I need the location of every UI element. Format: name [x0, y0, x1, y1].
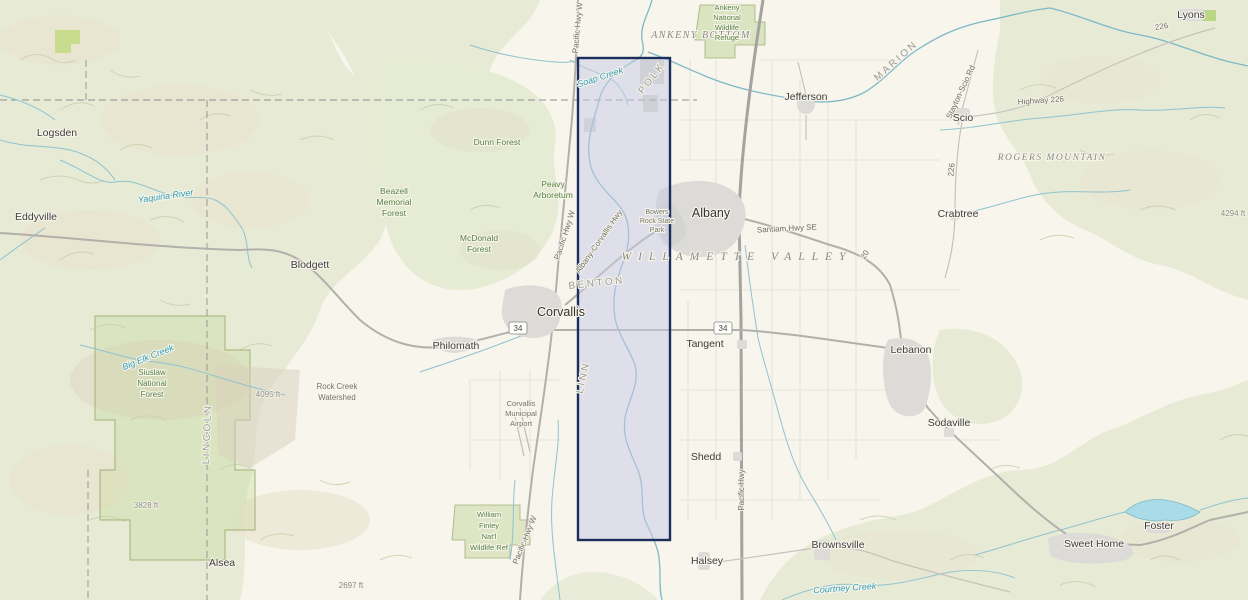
- map-label: Logsden: [37, 127, 77, 139]
- map-label: 3828 ft: [134, 501, 159, 510]
- map-label: 226: [946, 162, 956, 177]
- map-label: Dunn Forest: [474, 137, 521, 147]
- map-label: Pacific Hwy: [737, 469, 746, 510]
- map-label: Shedd: [691, 451, 722, 463]
- map-label: Wildlife Ref: [470, 543, 509, 552]
- selection-extent-box[interactable]: [578, 58, 670, 540]
- map-label: William: [477, 510, 501, 519]
- map-label: Airport: [510, 419, 533, 428]
- map-label: Lyons: [1177, 9, 1205, 21]
- map-label: 2697 ft: [339, 581, 364, 590]
- map-label: 4095 ft: [256, 390, 281, 399]
- map-label: Memorial: [377, 197, 412, 207]
- map-label: Foster: [1144, 520, 1174, 532]
- sodaville-urban-area: [944, 428, 954, 437]
- map-label: Sweet Home: [1064, 538, 1124, 550]
- map-label: Nat'l: [482, 532, 497, 541]
- map-label: 34: [514, 324, 523, 333]
- map-label: Forest: [467, 244, 492, 254]
- tangent-urban-area: [737, 340, 747, 349]
- map-label: Brownsville: [811, 539, 864, 551]
- map-label: Alsea: [209, 557, 235, 569]
- map-label: Crabtree: [938, 208, 979, 220]
- map-label: Tangent: [686, 338, 723, 350]
- map-label: National: [713, 13, 741, 22]
- map-label: Corvallis: [507, 399, 536, 408]
- map-label: Eddyville: [15, 211, 57, 223]
- map-label: Sodaville: [928, 417, 971, 429]
- map-label: Watershed: [318, 393, 355, 402]
- map-label: Park: [650, 227, 665, 234]
- map-label: Bowers: [645, 209, 669, 216]
- map-label: Lebanon: [891, 344, 932, 356]
- map-label: Philomath: [433, 340, 480, 352]
- map-label: Rock State: [640, 218, 674, 225]
- map-label: 34: [719, 324, 728, 333]
- map-label: Municipal: [505, 409, 537, 418]
- shedd-urban-area: [733, 452, 742, 461]
- map-canvas[interactable]: 3434 ANKENY BOTTOMWILLAMETTE VALLEYROGER…: [0, 0, 1248, 600]
- map-label: 4294 ft: [1221, 209, 1246, 218]
- map-label: Peavy: [541, 179, 565, 189]
- map-label: Corvallis: [537, 305, 585, 319]
- map-label: Jefferson: [785, 91, 828, 103]
- map-label: WILLAMETTE VALLEY: [622, 251, 853, 263]
- map-label: Ankeny: [714, 3, 739, 12]
- map-label: Rock Creek: [317, 382, 358, 391]
- map-label: Forest: [382, 208, 407, 218]
- map-label: Albany: [692, 206, 731, 220]
- map-label: LINCOLN: [201, 403, 214, 464]
- basemap-svg: 3434 ANKENY BOTTOMWILLAMETTE VALLEYROGER…: [0, 0, 1248, 600]
- map-label: Blodgett: [291, 259, 330, 271]
- map-label: Wildlife: [715, 23, 739, 32]
- map-label: ROGERS MOUNTAIN: [997, 153, 1107, 163]
- map-label: Forest: [141, 390, 164, 399]
- map-label: Halsey: [691, 555, 724, 567]
- map-label: Siuslaw: [138, 368, 166, 377]
- map-label: Finley: [479, 521, 499, 530]
- map-label: Scio: [953, 112, 974, 124]
- map-label: National: [137, 379, 167, 388]
- map-label: McDonald: [460, 233, 499, 243]
- map-label: Arboretum: [533, 190, 573, 200]
- map-label: Refuge: [715, 33, 739, 42]
- map-label: Beazell: [380, 186, 408, 196]
